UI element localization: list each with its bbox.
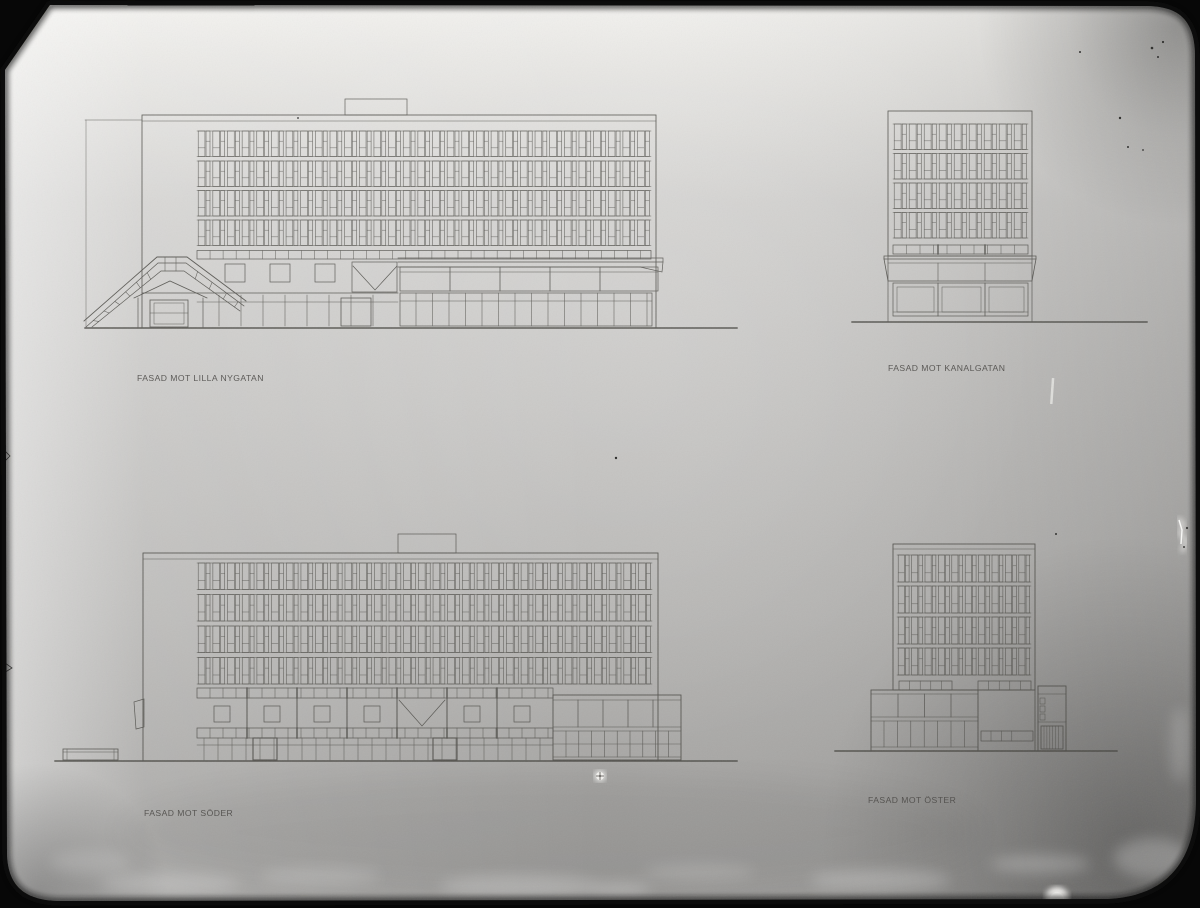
photograph: FASAD MOT LILLA NYGATAN FASAD MOT KANALG…: [0, 0, 1200, 908]
film-grain-overlay: [0, 0, 1200, 908]
plate-svg: FASAD MOT LILLA NYGATAN FASAD MOT KANALG…: [0, 0, 1200, 908]
